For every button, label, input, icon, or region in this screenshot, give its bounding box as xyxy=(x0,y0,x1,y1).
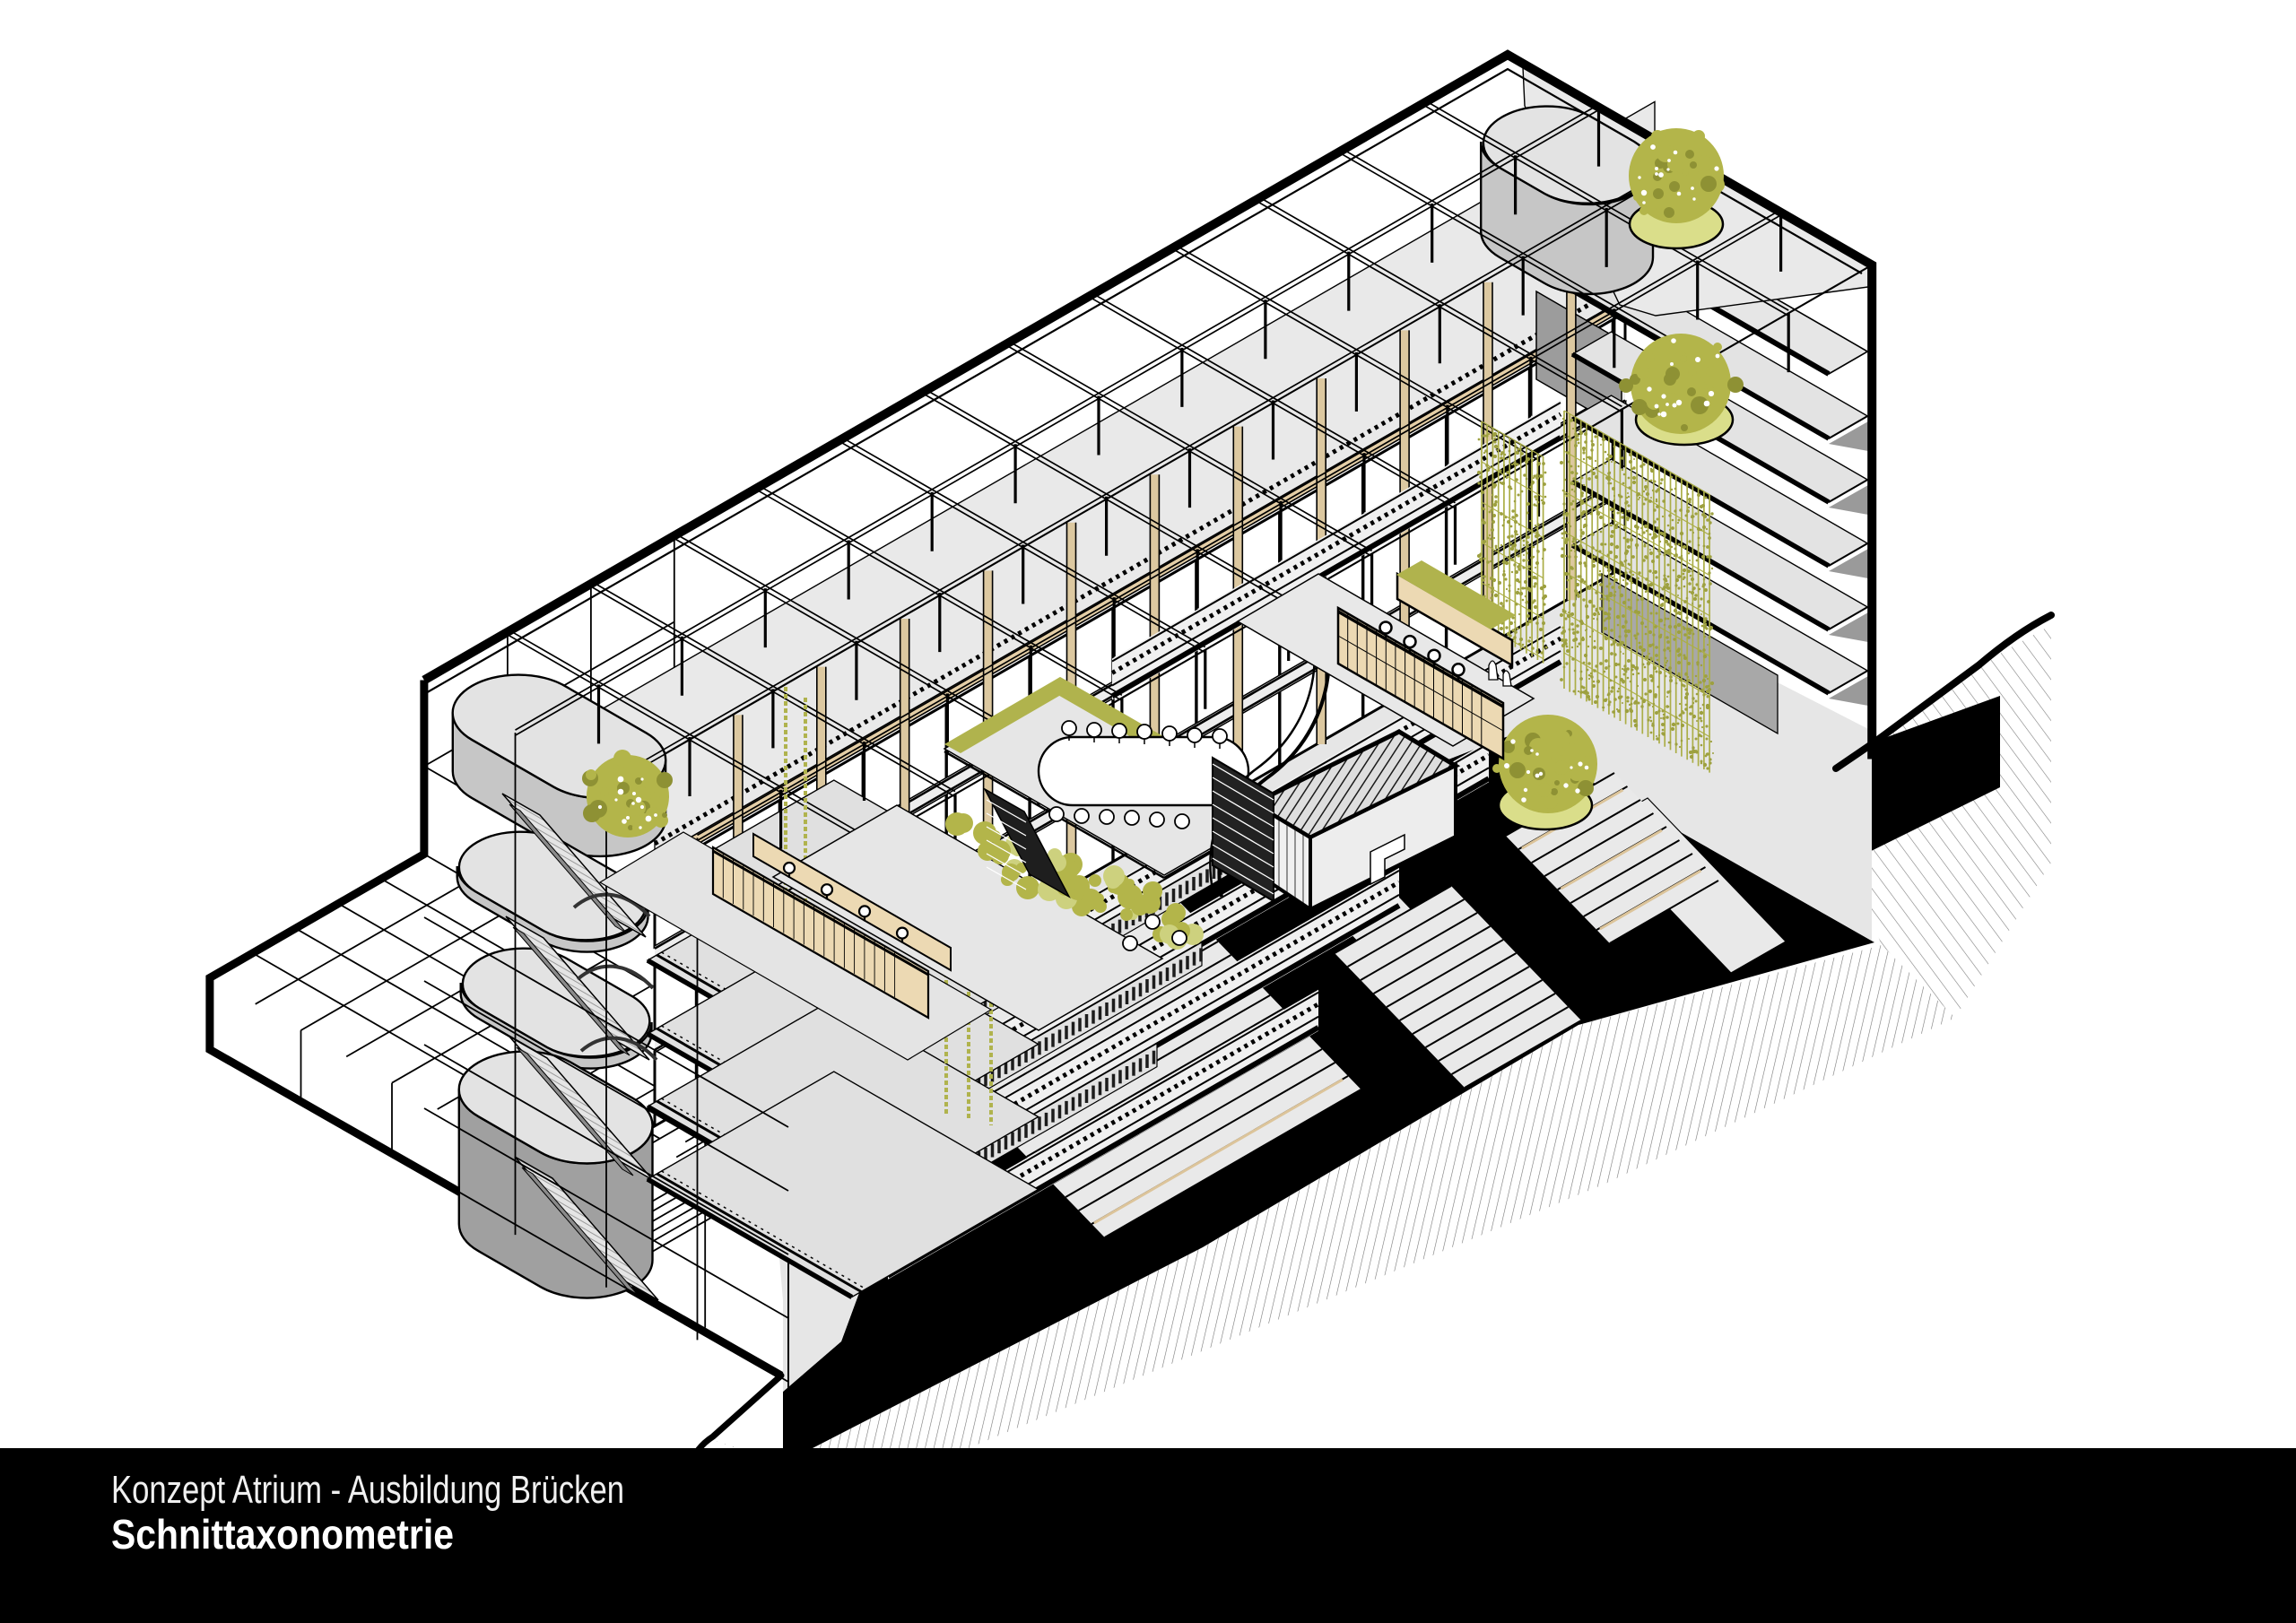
svg-text:Konzept Atrium - Ausbildung Br: Konzept Atrium - Ausbildung Brücken xyxy=(111,1468,624,1512)
svg-text:Schnittaxonometrie: Schnittaxonometrie xyxy=(111,1511,454,1558)
